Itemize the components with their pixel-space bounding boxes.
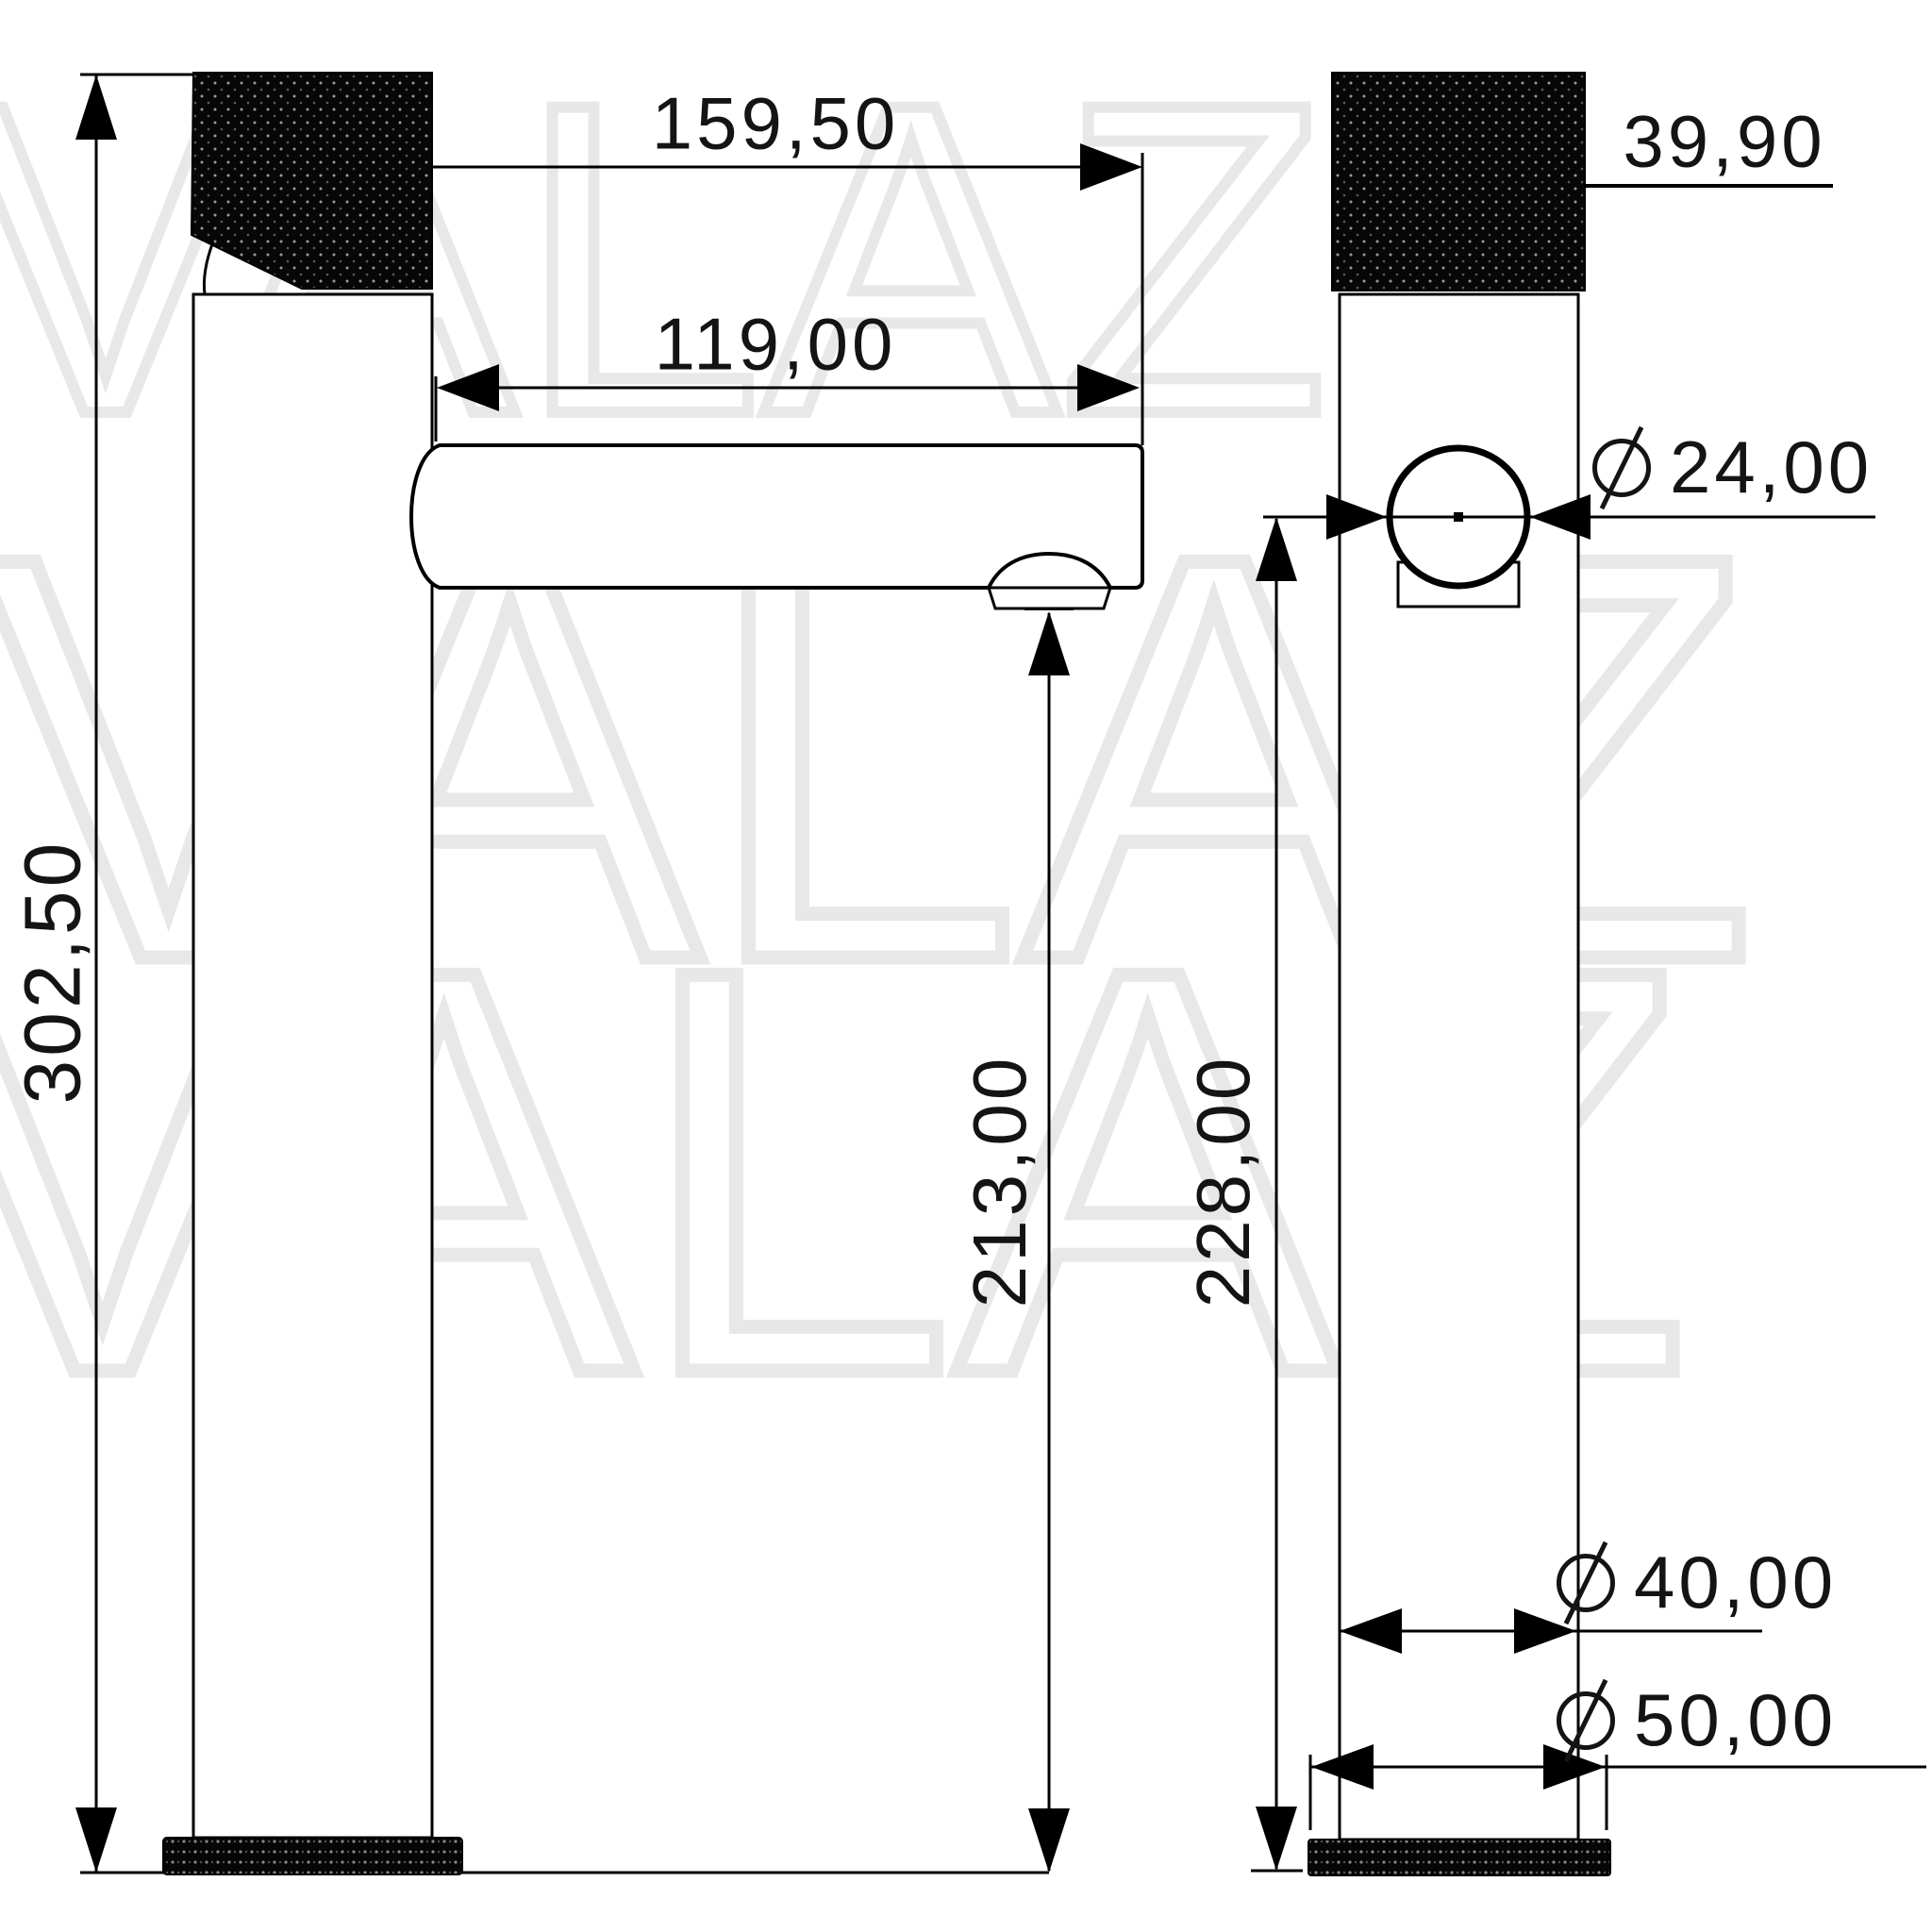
- arrow-down-icon: [75, 1807, 117, 1873]
- arrow-up-icon: [1028, 611, 1070, 675]
- handle-front: [1332, 73, 1585, 291]
- body-column-side: [193, 294, 432, 1838]
- label-body-diameter: 40,00: [1557, 1540, 1837, 1625]
- diameter-icon: [1557, 1554, 1615, 1612]
- arrow-right-icon: [1080, 143, 1142, 191]
- diameter-slash: [1600, 425, 1644, 508]
- body-diameter-value: 40,00: [1634, 1540, 1837, 1625]
- aerator-side: [989, 588, 1110, 608]
- arrow-up-icon: [75, 75, 117, 140]
- diameter-icon: [1557, 1691, 1615, 1750]
- base-plate-front: [1308, 1840, 1610, 1875]
- handle-side: [192, 73, 432, 289]
- label-spout-diameter: 24,00: [1592, 425, 1873, 510]
- label-base-diameter: 50,00: [1557, 1677, 1837, 1763]
- handle-neck-curve: [204, 241, 213, 294]
- label-handle-height: 39,90: [1623, 99, 1825, 185]
- arrow-down-icon: [1256, 1807, 1297, 1871]
- technical-drawing: [0, 0, 1932, 1932]
- label-total-width: 159,50: [652, 81, 900, 167]
- base-plate-side: [163, 1838, 462, 1874]
- arrow-left-icon: [437, 364, 499, 411]
- diameter-slash: [1564, 1541, 1608, 1624]
- spout-diameter-value: 24,00: [1670, 425, 1873, 510]
- label-outlet-height: 228,00: [1180, 1055, 1267, 1308]
- arrow-up-icon: [1256, 517, 1297, 581]
- diameter-icon: [1592, 439, 1651, 497]
- arrow-down-icon: [1028, 1808, 1070, 1873]
- drawing-canvas: VALAZ VALAZ VALAZ: [0, 0, 1932, 1932]
- dim-total-width: [432, 143, 1142, 445]
- label-total-height: 302,50: [8, 840, 99, 1105]
- base-diameter-value: 50,00: [1634, 1677, 1837, 1763]
- center-mark: [1454, 512, 1463, 522]
- spout-outline: [411, 445, 1142, 588]
- label-spout-reach: 119,00: [655, 302, 897, 388]
- label-spout-height: 213,00: [957, 1055, 1043, 1308]
- diameter-slash: [1564, 1678, 1608, 1761]
- arrow-right-icon: [1077, 364, 1140, 411]
